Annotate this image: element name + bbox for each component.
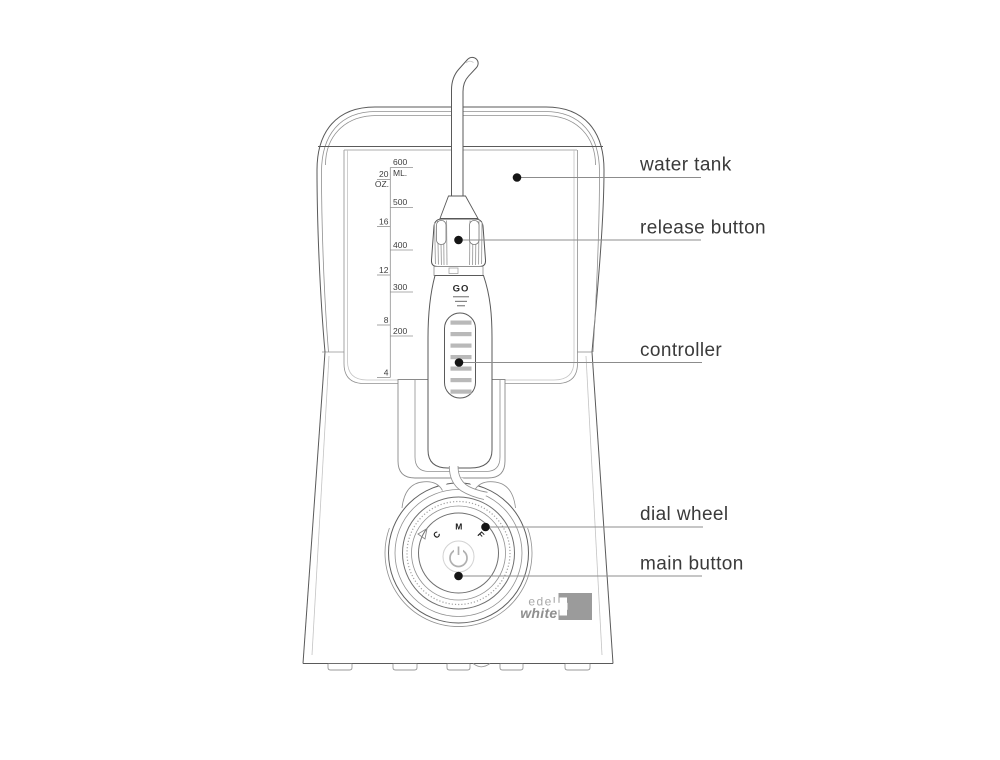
label-main-button: main button	[640, 554, 744, 575]
leader-dot	[513, 173, 522, 182]
label-release-button: release button	[640, 218, 766, 239]
logo-text-white: white	[520, 605, 557, 621]
annotation-controller: controller	[455, 340, 723, 367]
label-dial-wheel: dial wheel	[640, 504, 729, 525]
scale-oz-unit: OZ.	[375, 179, 389, 189]
scale-oz-16: 16	[379, 217, 389, 227]
label-water-tank: water tank	[639, 155, 732, 176]
scale-ml-300: 300	[393, 282, 407, 292]
controller	[445, 313, 476, 398]
leader-dot	[481, 523, 490, 532]
scale-ml-200: 200	[393, 326, 407, 336]
dial-wheel: C M F	[385, 466, 532, 627]
scale-oz-12: 12	[379, 265, 389, 275]
leader-dot	[454, 236, 463, 245]
scale-ml-400: 400	[393, 240, 407, 250]
diagram-canvas: 600 ML. 500 400 300 200 20 OZ. 16 12 8 4	[0, 0, 1000, 760]
scale-ml-500: 500	[393, 197, 407, 207]
scale-ml-unit: ML.	[393, 168, 407, 178]
label-controller: controller	[640, 340, 722, 361]
go-label: GO	[453, 284, 470, 295]
nozzle	[452, 57, 479, 196]
annotation-water-tank: water tank	[513, 155, 732, 182]
water-flosser-diagram: 600 ML. 500 400 300 200 20 OZ. 16 12 8 4	[0, 0, 1000, 760]
scale-ml-600: 600	[393, 157, 407, 167]
base-feet	[328, 664, 590, 671]
release-button	[431, 219, 485, 276]
handle-neck	[440, 196, 478, 219]
brand-logo: edel white	[520, 593, 592, 621]
leader-dot	[455, 358, 464, 367]
logo-mark-icon	[553, 593, 593, 620]
tank-scale: 600 ML. 500 400 300 200 20 OZ. 16 12 8 4	[375, 157, 413, 378]
scale-oz-4: 4	[384, 368, 389, 378]
leader-dot	[454, 572, 463, 581]
annotation-release-button: release button	[454, 218, 766, 245]
dial-letter-m: M	[455, 521, 462, 531]
scale-oz-20: 20	[379, 169, 389, 179]
scale-oz-8: 8	[384, 315, 389, 325]
